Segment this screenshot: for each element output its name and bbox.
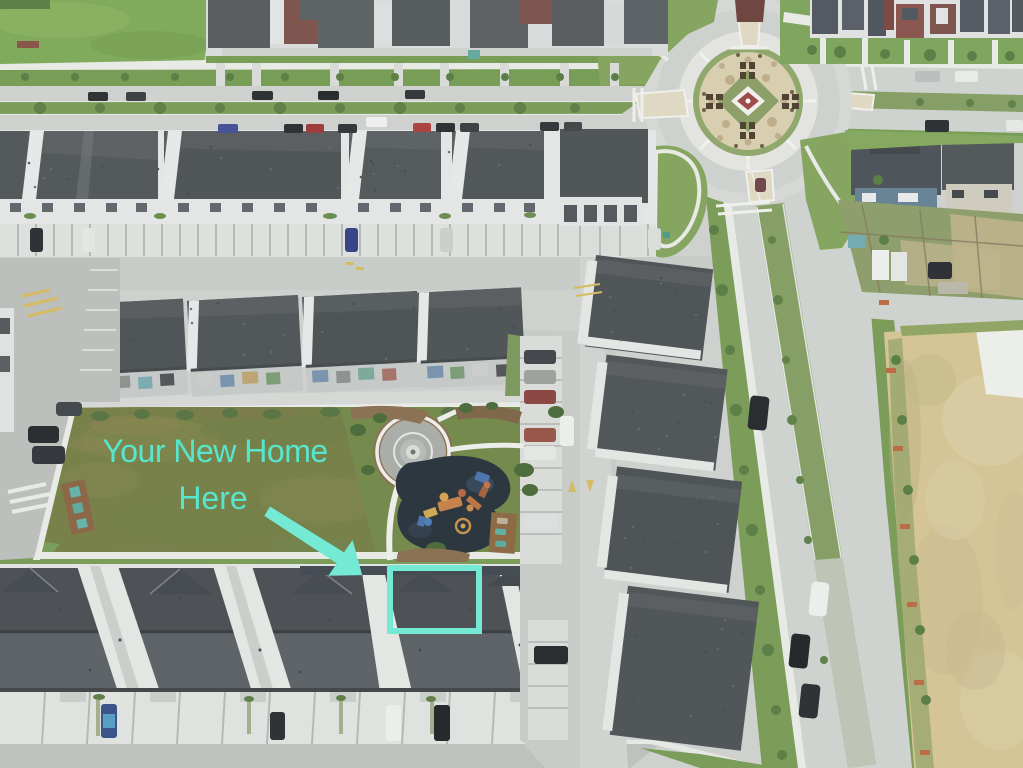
svg-text:Here: Here bbox=[178, 480, 247, 516]
svg-text:Your New Home: Your New Home bbox=[102, 433, 327, 469]
